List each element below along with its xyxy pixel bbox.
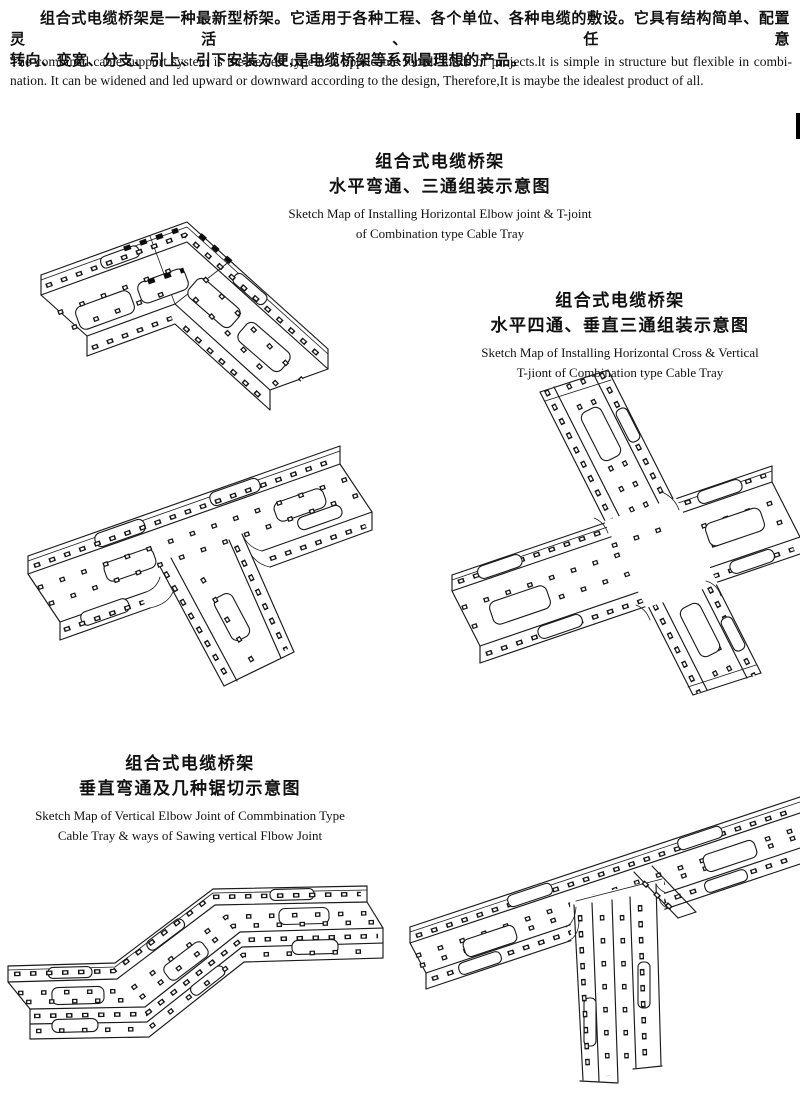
figure2-drawing-cross	[452, 370, 800, 695]
line-art-layer	[0, 0, 800, 1104]
figure1-drawing-tee	[28, 446, 372, 686]
catalog-page: { "intro": { "zh_line1": "组合式电缆桥架是一种最新型桥…	[0, 0, 800, 1104]
figure3-drawing-vertical-tee	[410, 797, 800, 1083]
figure3-drawing-vertical-elbow	[8, 886, 383, 1039]
figure1-drawing-elbow	[41, 222, 328, 410]
